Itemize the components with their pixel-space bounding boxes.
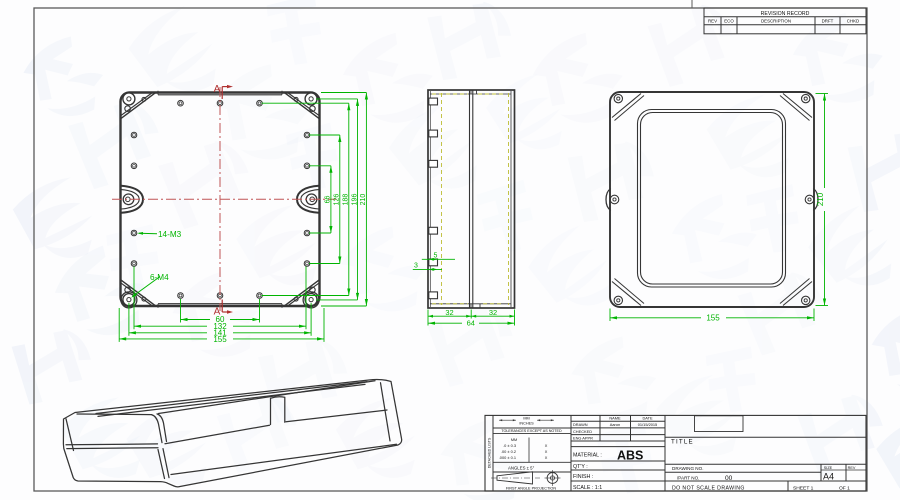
svg-text:X: X: [545, 443, 548, 448]
svg-text:DRAWING NO.: DRAWING NO.: [672, 466, 703, 471]
svg-text:A4: A4: [823, 472, 834, 482]
svg-text:FINISH :: FINISH :: [573, 474, 593, 480]
svg-text:/PART NO.: /PART NO.: [677, 475, 699, 480]
svg-text:MM: MM: [523, 416, 529, 420]
svg-text:155: 155: [706, 314, 720, 323]
svg-text:155: 155: [213, 335, 227, 344]
svg-text:3: 3: [414, 262, 418, 269]
svg-text:MATERIAL :: MATERIAL :: [573, 453, 602, 459]
svg-text:Aaron: Aaron: [610, 422, 620, 427]
svg-text:SIZE: SIZE: [824, 466, 833, 470]
svg-text:64: 64: [467, 319, 475, 328]
svg-text:X: X: [545, 455, 548, 460]
svg-text:126: 126: [334, 194, 341, 206]
svg-text:32: 32: [489, 308, 497, 317]
svg-text:.0 ± 0.3: .0 ± 0.3: [503, 443, 516, 448]
svg-text:5: 5: [434, 252, 438, 259]
svg-text:NAME: NAME: [609, 416, 621, 421]
svg-text:SHEET 1: SHEET 1: [793, 485, 814, 491]
svg-text:6-M4: 6-M4: [150, 273, 169, 282]
svg-text:OF 1: OF 1: [839, 485, 850, 491]
svg-text:00: 00: [725, 475, 733, 482]
svg-text:66: 66: [325, 196, 332, 204]
svg-text:DATE: DATE: [642, 416, 652, 421]
svg-text:01/15/2015: 01/15/2015: [638, 422, 657, 427]
svg-text:TOLERANCES EXCEPT AS NOTED: TOLERANCES EXCEPT AS NOTED: [501, 429, 562, 433]
svg-text:CHECKED: CHECKED: [573, 429, 592, 434]
svg-text:ANGLES ± 5°: ANGLES ± 5°: [508, 465, 535, 470]
svg-text:INCHES: INCHES: [519, 422, 534, 426]
svg-text:ECO: ECO: [724, 19, 734, 24]
svg-text:188: 188: [343, 194, 350, 206]
svg-text:ENG APPR: ENG APPR: [573, 435, 593, 440]
svg-text:REV: REV: [848, 466, 856, 470]
svg-text:DETACHED LISTS: DETACHED LISTS: [488, 437, 492, 468]
svg-text:X: X: [545, 449, 548, 454]
svg-text:DO NOT SCALE DRAWING: DO NOT SCALE DRAWING: [672, 485, 745, 491]
svg-text:.00 ± 0.2: .00 ± 0.2: [501, 449, 516, 454]
svg-text:FIRST ANGLE PROJECTION: FIRST ANGLE PROJECTION: [506, 487, 556, 491]
svg-text:.000 ± 0.1: .000 ± 0.1: [499, 455, 516, 460]
svg-text:210: 210: [360, 194, 367, 206]
svg-text:196: 196: [351, 194, 358, 206]
svg-text:32: 32: [445, 308, 453, 317]
svg-text:SCALE : 1:1: SCALE : 1:1: [573, 485, 602, 491]
svg-text:REV: REV: [708, 19, 717, 24]
svg-text:CHKD: CHKD: [847, 19, 859, 24]
svg-text:MM: MM: [511, 438, 517, 442]
svg-text:REVISION RECORD: REVISION RECORD: [761, 11, 810, 17]
svg-text:210: 210: [816, 192, 825, 206]
svg-text:DRAWN: DRAWN: [573, 422, 588, 427]
svg-text:A: A: [214, 84, 221, 95]
svg-text:DRFT: DRFT: [822, 19, 834, 24]
svg-text:ABS: ABS: [617, 448, 643, 462]
svg-text:QT'Y :: QT'Y :: [573, 464, 588, 470]
svg-text:TITLE: TITLE: [671, 439, 694, 446]
svg-text:DESCRIPTION: DESCRIPTION: [761, 19, 791, 24]
svg-text:14-M3: 14-M3: [158, 230, 182, 239]
